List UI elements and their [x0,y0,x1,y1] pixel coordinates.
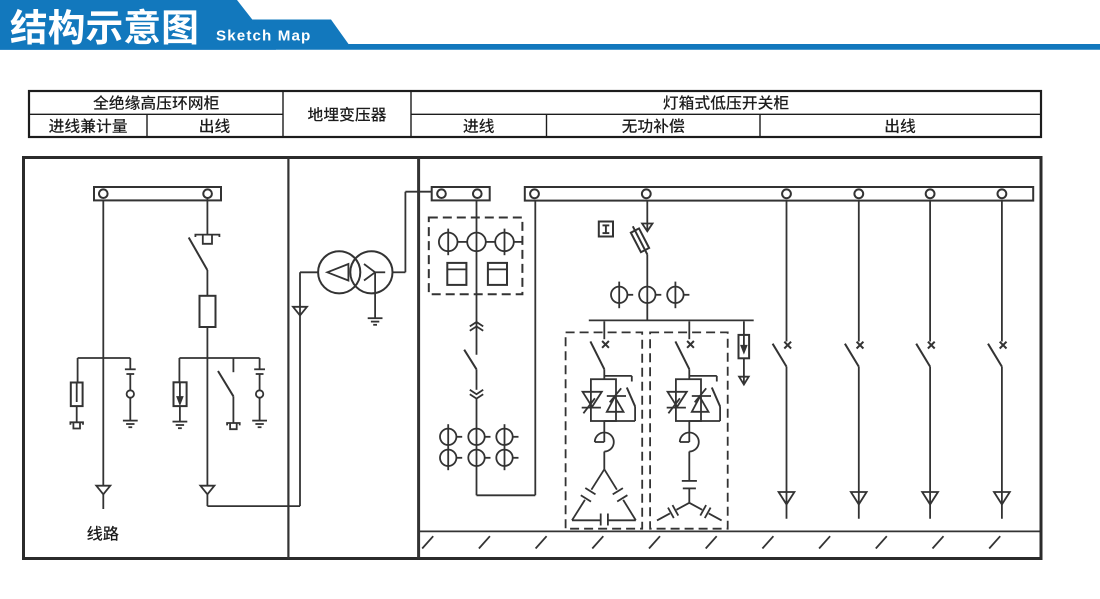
svg-text:Sketch Map: Sketch Map [216,28,311,45]
